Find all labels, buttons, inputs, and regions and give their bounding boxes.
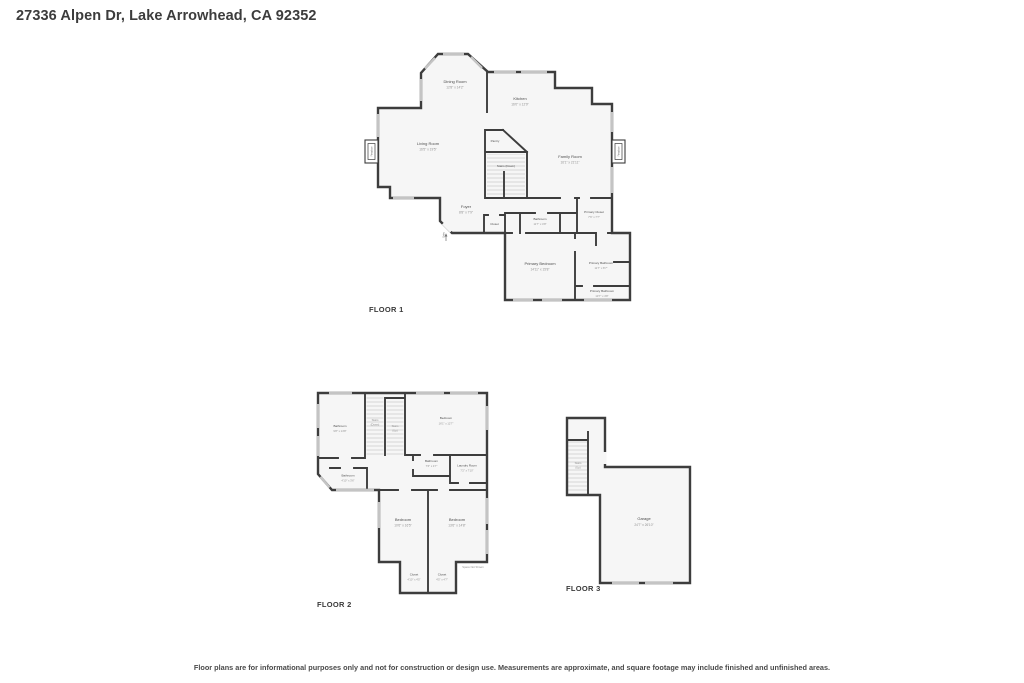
stairs-hatch <box>487 154 525 197</box>
room-label-stairs-up: Stairs <box>575 461 583 465</box>
room-label-stairs-down: Stairs <box>372 418 380 422</box>
floor-plan-page: 27336 Alpen Dr, Lake Arrowhead, CA 92352… <box>0 0 1024 683</box>
fireplace-left-label: Fireplace <box>371 146 374 157</box>
room-label-bedroom-ll: Bedroom <box>395 517 412 522</box>
room-label-stairs-up-2: (Up) <box>575 466 580 470</box>
room-dims-bathroom-mid: 7'6" x 4'7" <box>426 464 438 468</box>
room-label-primary-bathroom: Primary Bathroom <box>589 261 614 265</box>
room-label-primary-bedroom: Primary Bedroom <box>524 261 556 266</box>
room-label-bathroom-tl: Bathroom <box>333 424 347 428</box>
room-label-closet-r: Closet <box>438 573 447 577</box>
room-dims-bathroom: 11'7" x 4'8" <box>533 222 546 226</box>
room-dims-garage: 24'7" x 26'10" <box>634 523 653 527</box>
room-label-bathroom: Bathroom <box>533 217 547 221</box>
room-label-stairs-down-2: (Down) <box>371 423 380 427</box>
room-label-primary-closet: Primary Closet <box>584 210 604 214</box>
floor-1-plan: Fireplace Fireplace Entry Dining Room 12… <box>358 38 650 310</box>
room-dims-bedroom-ll: 10'6" x 16'5" <box>394 524 411 528</box>
room-label-bedroom-lr: Bedroom <box>449 517 466 522</box>
room-label-dining: Dining Room <box>443 79 467 84</box>
room-label-primary-bathroom2: Primary Bathroom <box>590 289 615 293</box>
room-label-stairs-down: Stairs (Down) <box>497 164 515 168</box>
room-dims-primary-closet: 7'6" x 7'7" <box>588 215 600 219</box>
entry-label: Entry <box>443 231 446 237</box>
room-label-bedroom-tr: Bedroom <box>440 416 453 420</box>
room-label-stairs-up: Stairs <box>392 424 400 428</box>
room-dims-laundry: 7'2" x 7'10" <box>460 469 473 473</box>
fireplace-left: Fireplace <box>365 140 378 163</box>
room-label-kitchen: Kitchen <box>513 96 526 101</box>
room-dims-family: 16'1" x 21'11" <box>560 161 579 165</box>
room-label-stairs-up-2: (Up) <box>392 429 397 433</box>
floor-2-label: FLOOR 2 <box>317 600 352 609</box>
entry-marker: Entry <box>443 231 448 241</box>
room-dims-primary-bedroom: 14'11" x 15'8" <box>530 268 549 272</box>
space-not-shown-label: Space Not Shown <box>462 565 484 569</box>
room-dims-dining: 12'8" x 14'2" <box>446 86 463 90</box>
floor-3-plan: Stairs (Up) Garage 24'7" x 26'10" <box>560 413 695 588</box>
room-label-closet-l: Closet <box>410 573 419 577</box>
floor-1-label: FLOOR 1 <box>369 305 404 314</box>
room-label-foyer: Foyer <box>461 204 472 209</box>
room-dims-bathroom-tl: 9'8" x 14'8" <box>333 429 346 433</box>
room-label-living: Living Room <box>417 141 440 146</box>
fireplace-right-label: Fireplace <box>618 146 621 157</box>
disclaimer-text: Floor plans are for informational purpos… <box>0 663 1024 672</box>
floor-2-plan: Bathroom 9'8" x 14'8" Stairs (Down) Stai… <box>312 388 497 602</box>
room-label-bathroom-sm: Bathroom <box>341 474 355 478</box>
room-dims-bedroom-tr: 16'1" x 12'7" <box>439 422 454 426</box>
room-dims-closet-r: 4'5" x 4'7" <box>436 578 448 582</box>
room-dims-primary-bathroom2: 13'7" x 4'8" <box>595 294 608 298</box>
room-dims-bathroom-sm: 4'10" x 3'6" <box>341 479 354 483</box>
room-label-family: Family Room <box>558 154 582 159</box>
page-title: 27336 Alpen Dr, Lake Arrowhead, CA 92352 <box>16 8 317 24</box>
room-label-closet: Closet <box>490 222 499 226</box>
room-dims-foyer: 8'8" x 7'9" <box>459 211 473 215</box>
room-dims-bedroom-lr: 13'6" x 14'8" <box>448 524 465 528</box>
fireplace-right: Fireplace <box>612 140 625 163</box>
room-dims-primary-bathroom: 11'7" x 8'7" <box>594 266 607 270</box>
room-label-laundry: Laundry Room <box>457 464 477 468</box>
room-dims-kitchen: 16'0" x 12'9" <box>511 103 528 107</box>
room-label-bathroom-mid: Bathroom <box>425 459 439 463</box>
floor-3-label: FLOOR 3 <box>566 584 601 593</box>
room-dims-closet-l: 4'10" x 4'5" <box>407 578 420 582</box>
room-dims-living: 16'5" x 19'5" <box>419 148 436 152</box>
room-label-garage: Garage <box>637 516 651 521</box>
room-label-pantry: Pantry <box>491 139 500 143</box>
